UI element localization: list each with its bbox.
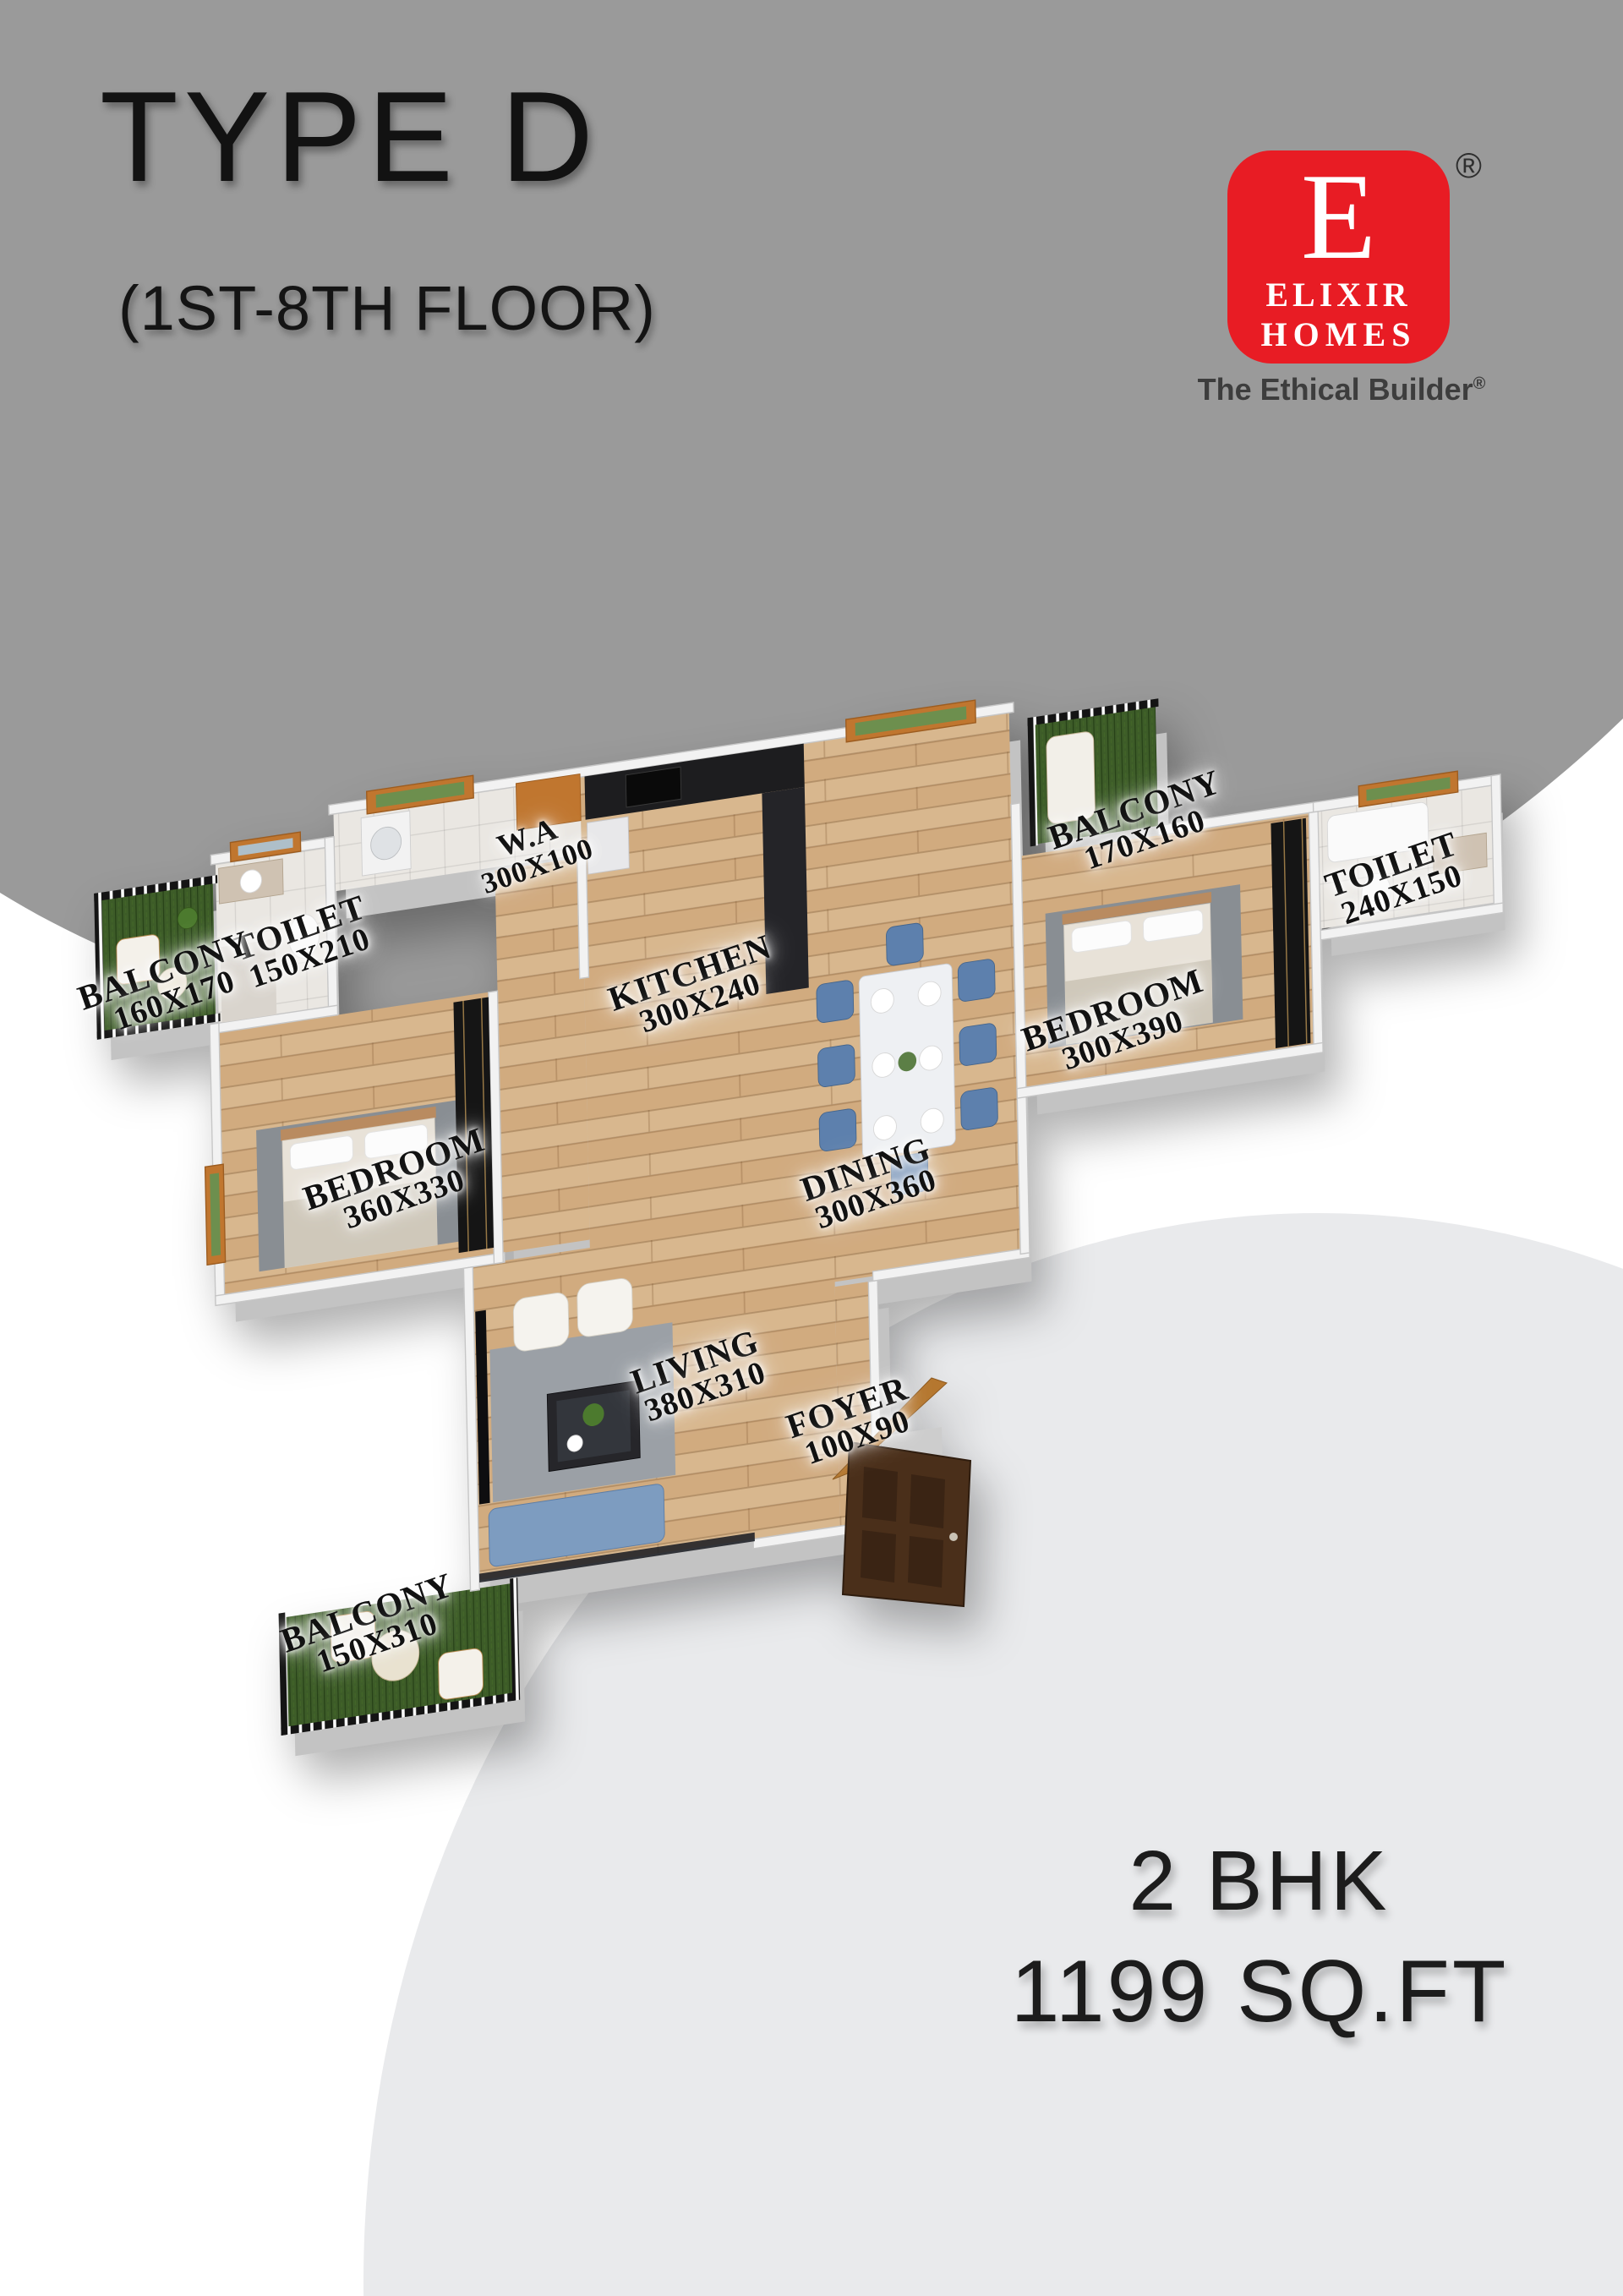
outdoor-chair	[438, 1648, 483, 1701]
poster: TYPE D (1ST-8TH FLOOR) E ELIXIR HOMES ® …	[0, 0, 1623, 2296]
unit-area: 1199 SQ.FT	[921, 1942, 1598, 2042]
armchair	[513, 1292, 569, 1353]
unit-type: 2 BHK	[921, 1833, 1598, 1930]
fridge	[587, 817, 629, 874]
wardrobe	[1271, 818, 1310, 1048]
corridor-floor	[495, 857, 590, 1253]
unit-summary: 2 BHK 1199 SQ.FT	[921, 1833, 1598, 2042]
armchair	[577, 1277, 633, 1338]
